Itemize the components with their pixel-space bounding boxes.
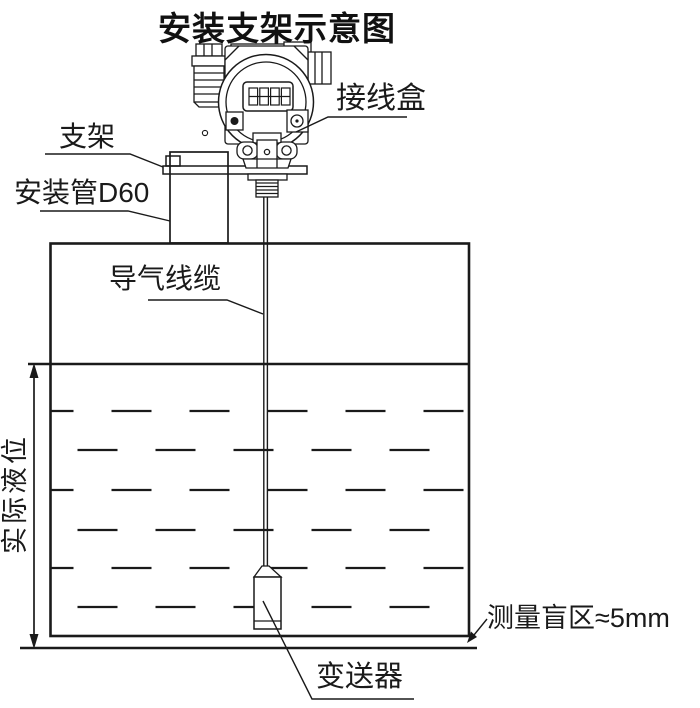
installation-diagram-page: 安装支架示意图 接线盒 支架 安装管D60 导气线缆 实际液位 测量盲区≈5mm… — [0, 0, 700, 708]
blind-zone-label: 测量盲区≈5mm — [487, 604, 670, 634]
air-cable-label: 导气线缆 — [109, 264, 221, 295]
threaded-stud — [256, 180, 278, 197]
display-icon — [243, 82, 293, 111]
transmitter-label: 变送器 — [316, 662, 403, 694]
arrow-up-icon — [30, 363, 39, 378]
bracket-leader — [45, 154, 163, 167]
mounting-pipe-label: 安装管D60 — [14, 178, 149, 209]
air-cable-leader — [148, 300, 263, 314]
hex-nut-upper — [243, 159, 291, 168]
junction-box-leader — [296, 117, 407, 132]
tank-group — [20, 244, 477, 649]
diagram-title: 安装支架示意图 — [158, 2, 396, 50]
hex-nut-lower — [248, 174, 287, 180]
probe-drawing — [254, 566, 281, 629]
air-guide-cable-lines — [264, 197, 268, 568]
actual-level-label: 实际液位 — [1, 419, 31, 569]
mounting-pipe-leader — [40, 211, 170, 221]
conduit-port-icon — [308, 52, 331, 84]
junction-box-label: 接线盒 — [336, 82, 426, 115]
bracket-label: 支架 — [59, 122, 115, 153]
